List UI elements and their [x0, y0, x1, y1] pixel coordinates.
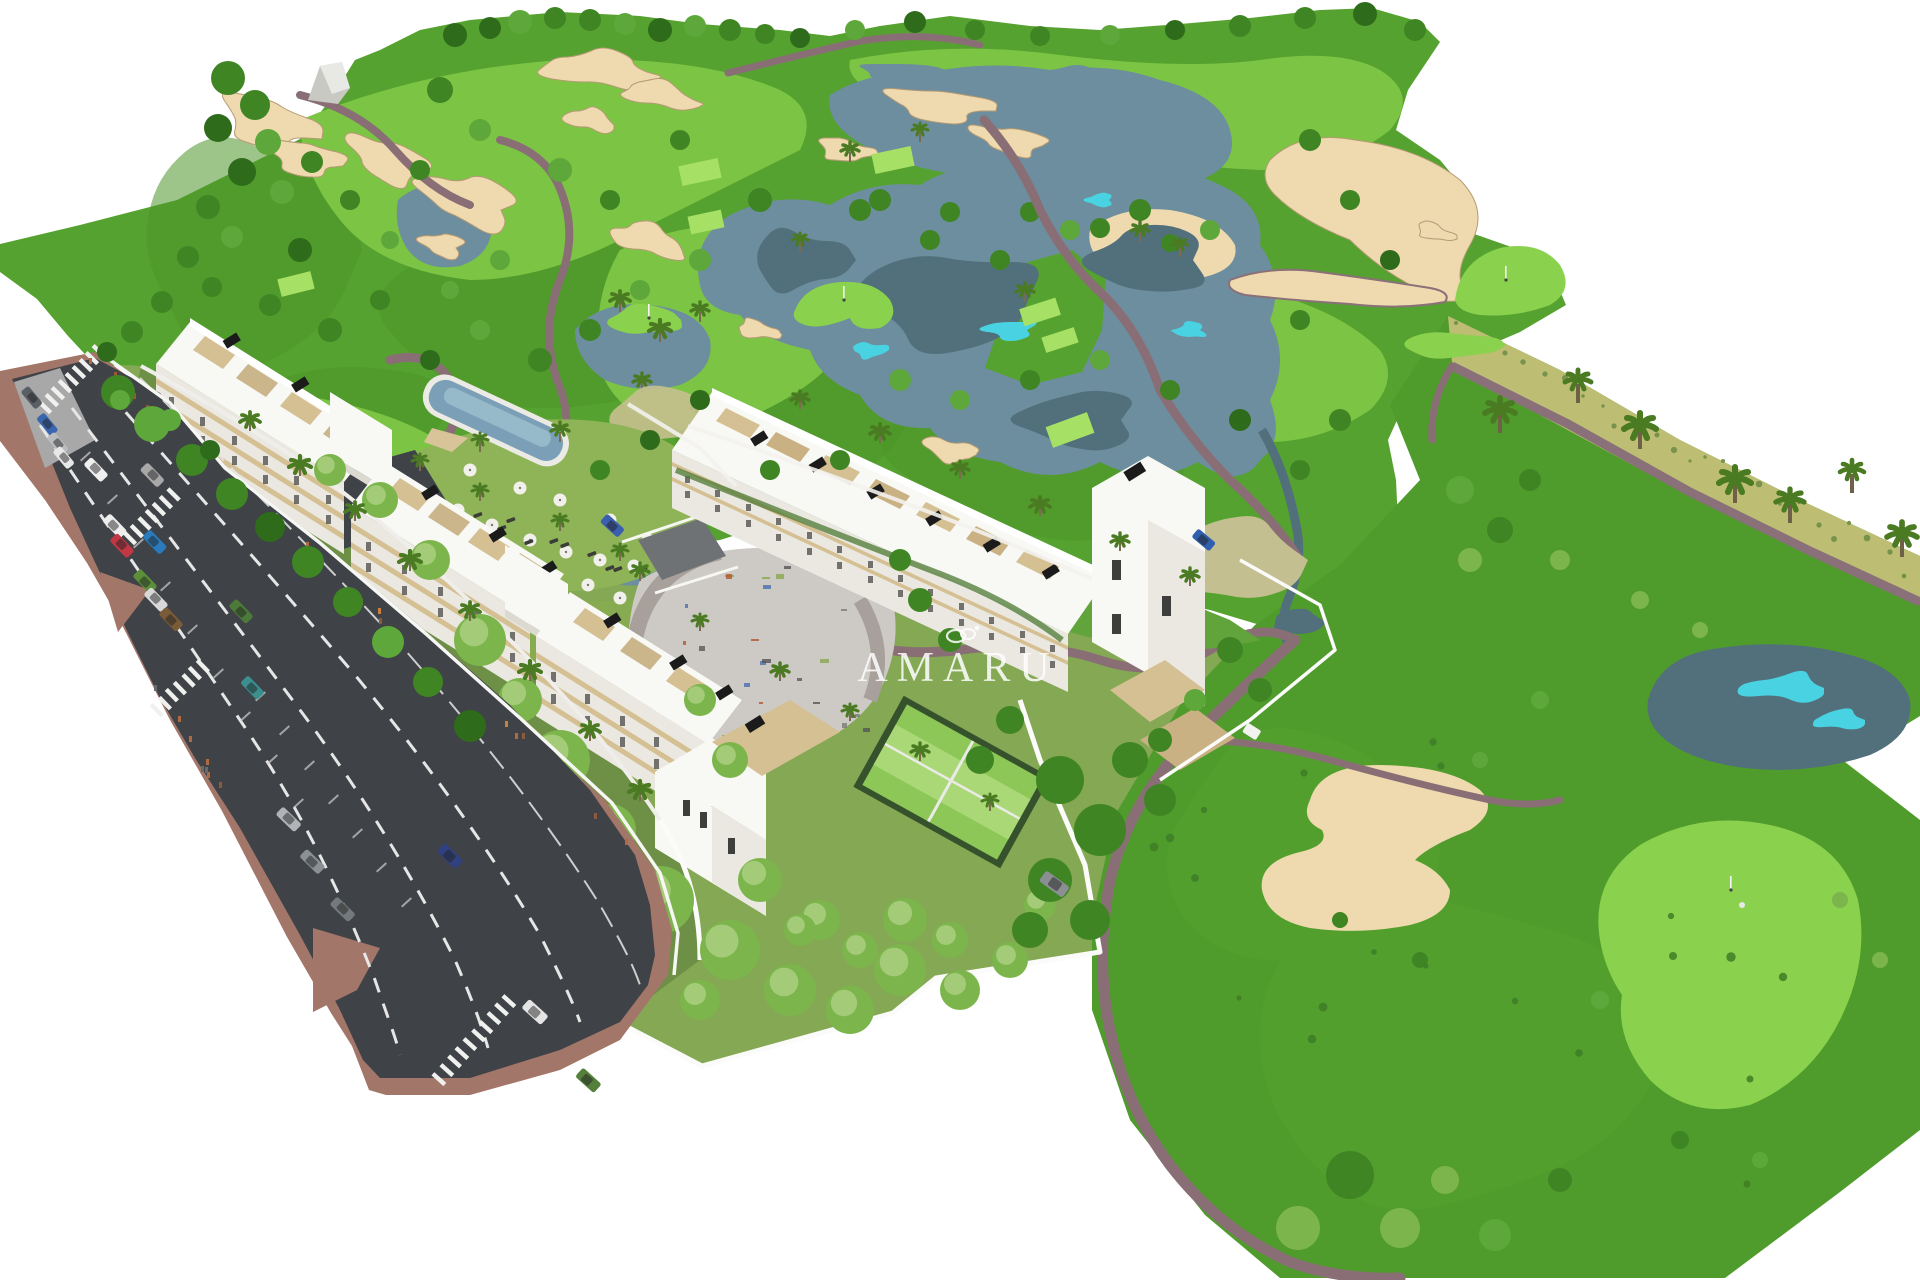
svg-text:AMARU: AMARU [857, 645, 1058, 691]
